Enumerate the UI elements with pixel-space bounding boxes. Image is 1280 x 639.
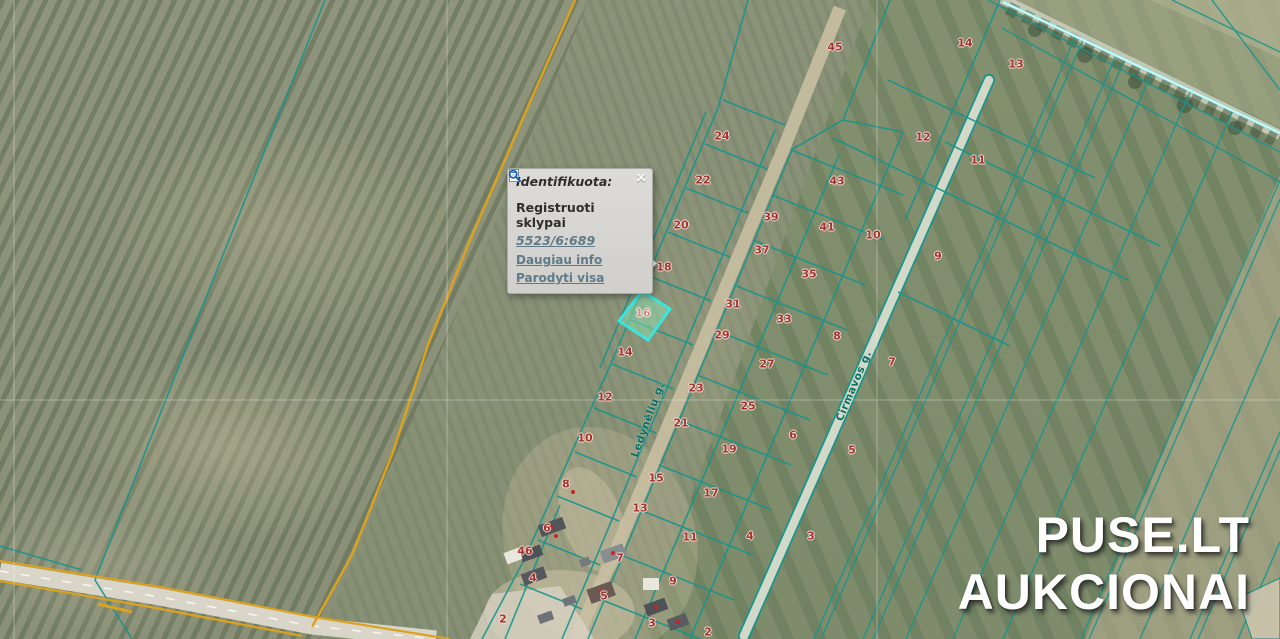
popup-title: Identifikuota: — [516, 174, 644, 189]
show-all-link[interactable]: Parodyti visa — [516, 271, 604, 285]
magnifier-icon — [508, 169, 521, 182]
parcel-overlay — [0, 0, 1280, 639]
map-canvas[interactable]: Ledynėlių g.Cirmavos g. 4514132412112243… — [0, 0, 1280, 639]
parcel-code-link[interactable]: 5523/6:689 — [516, 233, 595, 248]
identify-popup: Identifikuota: × Registruoti sklypai 552… — [507, 168, 653, 294]
popup-box: Identifikuota: × Registruoti sklypai 552… — [507, 168, 653, 294]
more-info-link[interactable]: Daugiau info — [516, 253, 602, 267]
popup-section-title: Registruoti sklypai — [516, 200, 644, 230]
close-icon[interactable]: × — [635, 171, 647, 185]
